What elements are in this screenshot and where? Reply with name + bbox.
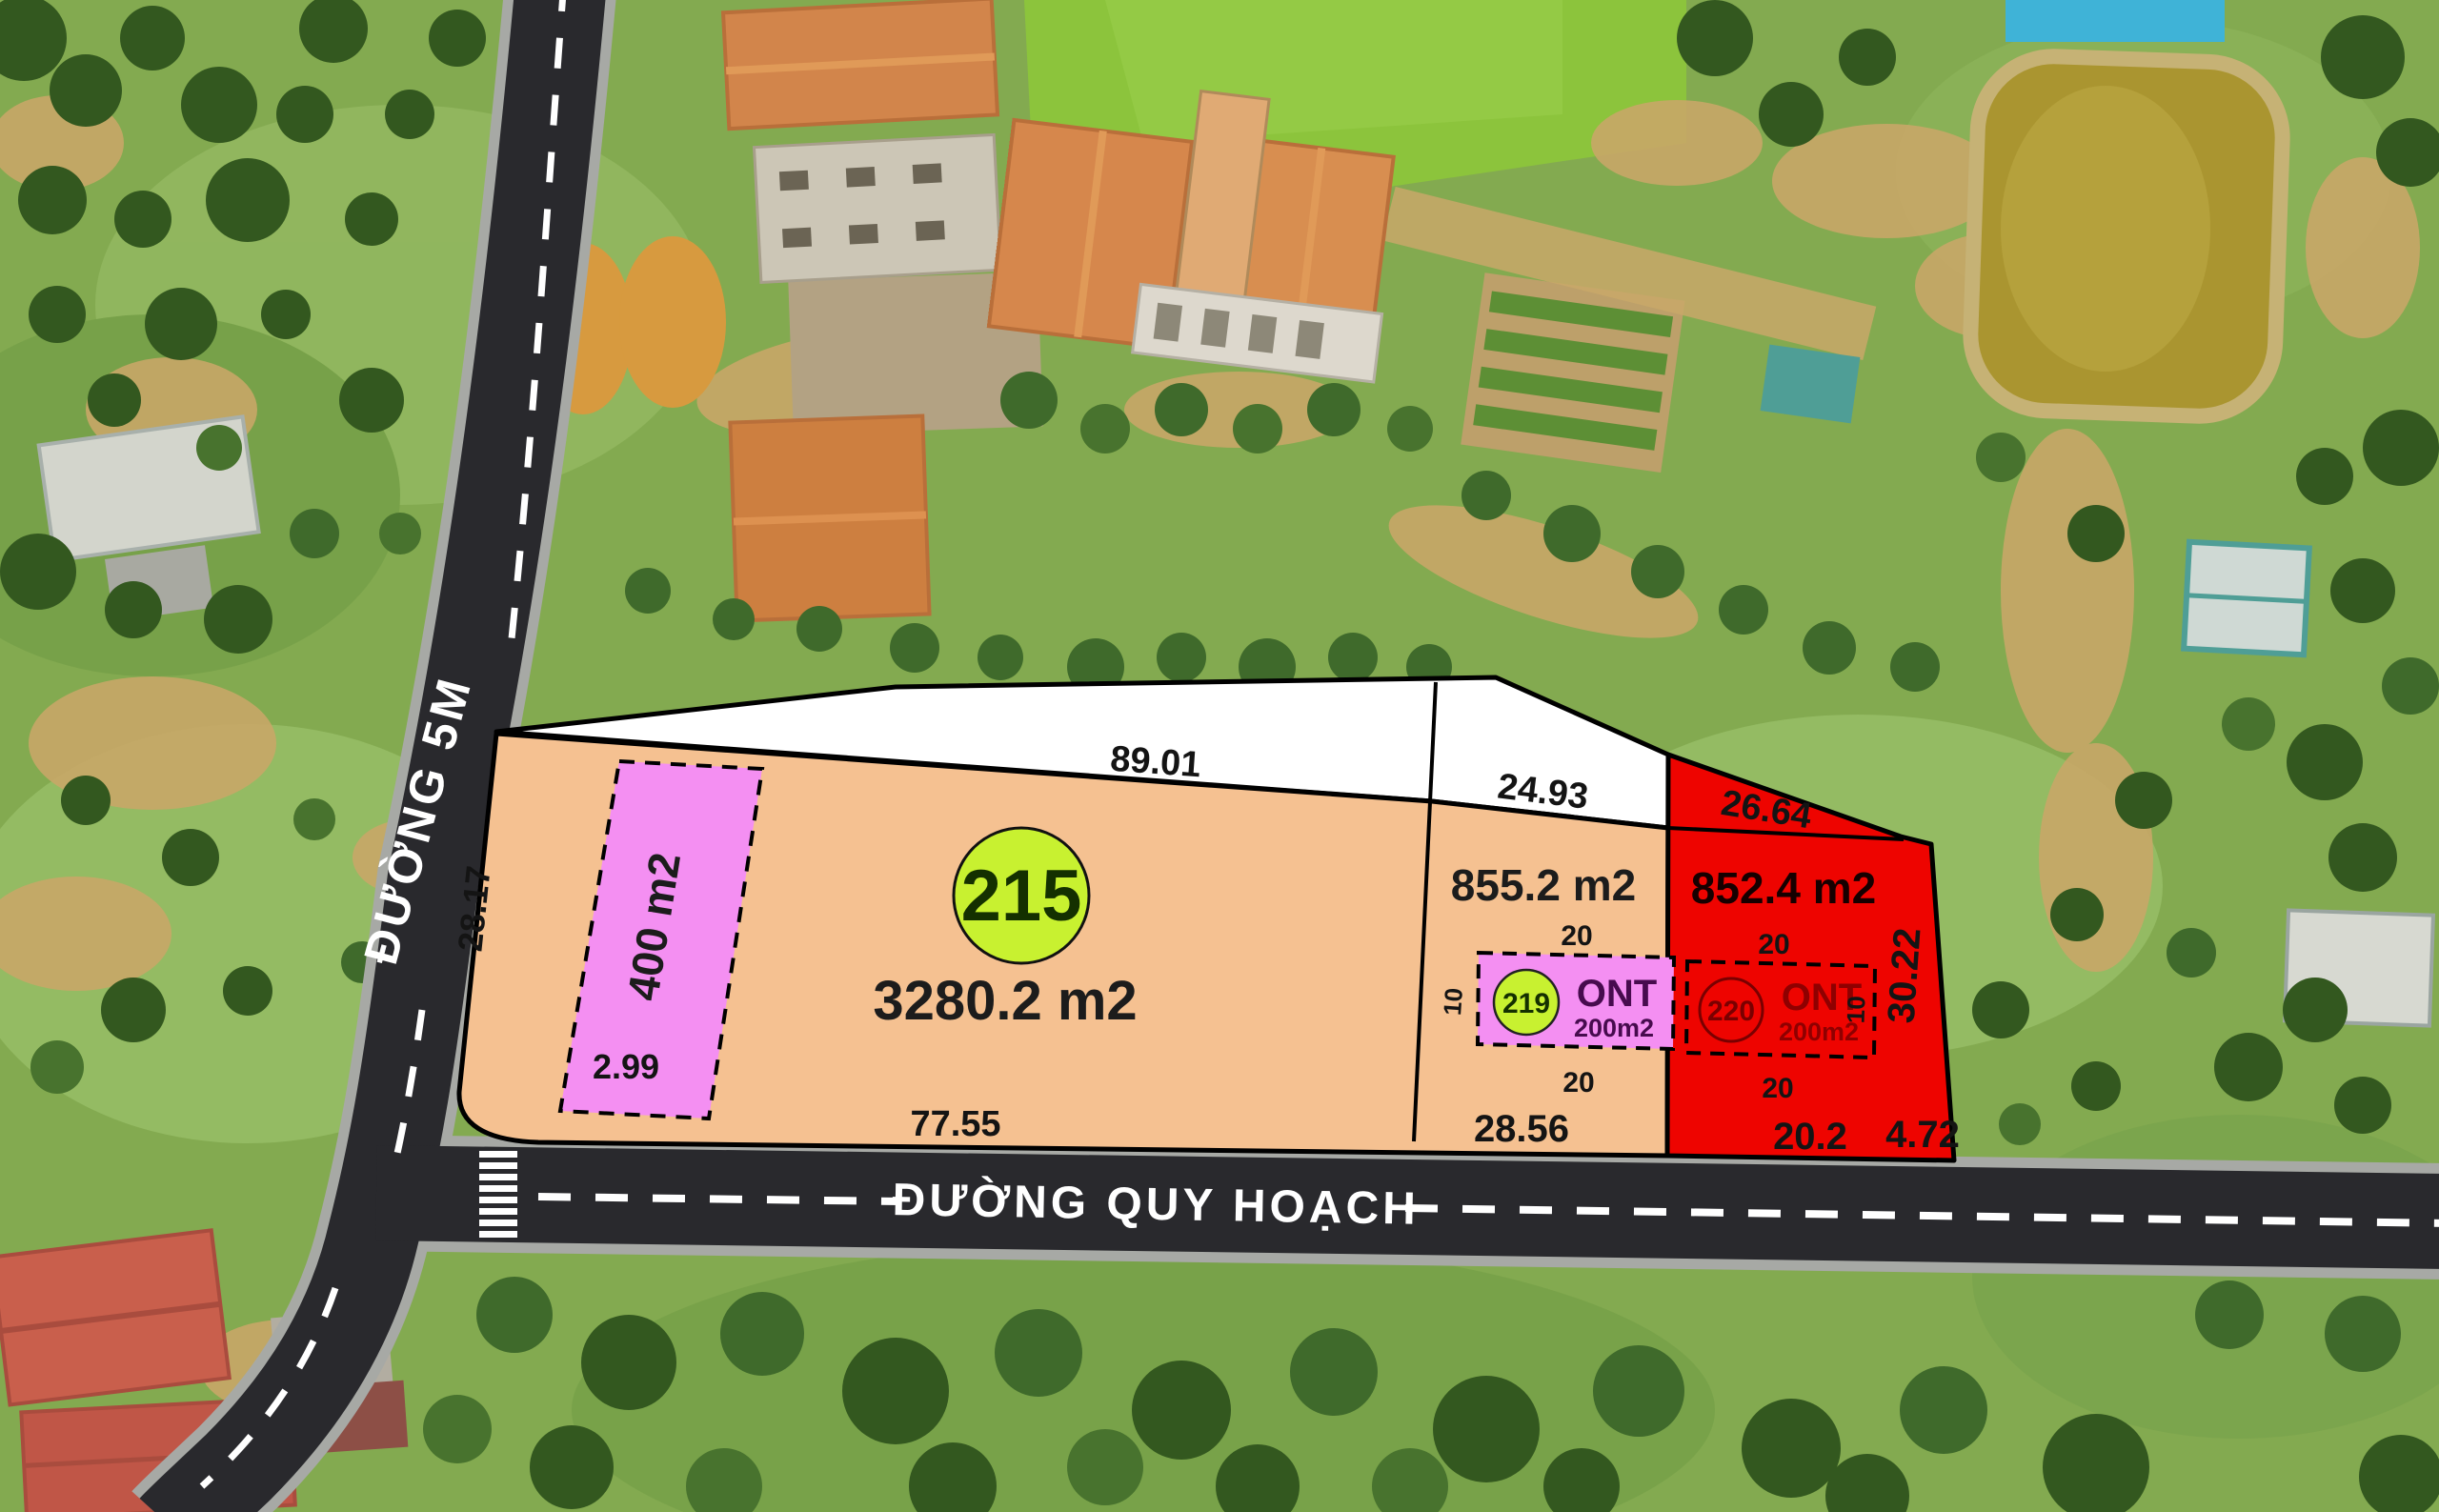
pond-highlight bbox=[2001, 86, 2210, 372]
ont-220-number: 220 bbox=[1707, 996, 1755, 1027]
ont-219-number: 219 bbox=[1502, 988, 1550, 1019]
ont-219-type: ONT bbox=[1577, 973, 1657, 1015]
plot-855-area: 855.2 m2 bbox=[1451, 860, 1636, 910]
dirt-mound-right bbox=[619, 236, 726, 408]
plot-215-area: 3280.2 m2 bbox=[873, 970, 1137, 1032]
teal-roof-house bbox=[2184, 542, 2309, 655]
edge-30-22: 30.22 bbox=[1881, 927, 1929, 1025]
ont-220-edge-top: 20 bbox=[1758, 929, 1789, 960]
edge-89-01: 89.01 bbox=[1109, 739, 1202, 786]
ont-220-edge-bottom: 20 bbox=[1762, 1073, 1793, 1104]
building-orange-roof-a bbox=[723, 0, 998, 129]
ont-219-edge-bottom: 20 bbox=[1562, 1067, 1594, 1099]
ont-219-edge-left: 10 bbox=[1438, 987, 1468, 1017]
edge-20-2: 20.2 bbox=[1773, 1116, 1847, 1158]
land-plot-map: ĐƯỜNG 5M ĐƯỜNG QUY HOẠCH 215 3280.2 m2 4… bbox=[0, 0, 2439, 1512]
edge-77-55: 77.55 bbox=[910, 1104, 1000, 1144]
building-orange-roof-b bbox=[730, 416, 929, 621]
plot-852-area: 852.4 m2 bbox=[1691, 863, 1876, 913]
ont-219-area: 200m2 bbox=[1574, 1014, 1654, 1042]
swimming-pool bbox=[2006, 0, 2225, 42]
edge-4-72: 4.72 bbox=[1885, 1114, 1960, 1156]
plot-215-number: 215 bbox=[961, 856, 1082, 937]
ont-220-edge-right: 10 bbox=[1842, 996, 1871, 1024]
edge-2-99: 2.99 bbox=[593, 1047, 659, 1086]
edge-28-56: 28.56 bbox=[1474, 1108, 1569, 1150]
planned-road-label: ĐƯỜNG QUY HOẠCH bbox=[892, 1173, 1420, 1235]
ont-219-edge-top: 20 bbox=[1561, 920, 1592, 952]
building-white-a bbox=[755, 134, 1001, 282]
teal-shed bbox=[1761, 345, 1861, 424]
